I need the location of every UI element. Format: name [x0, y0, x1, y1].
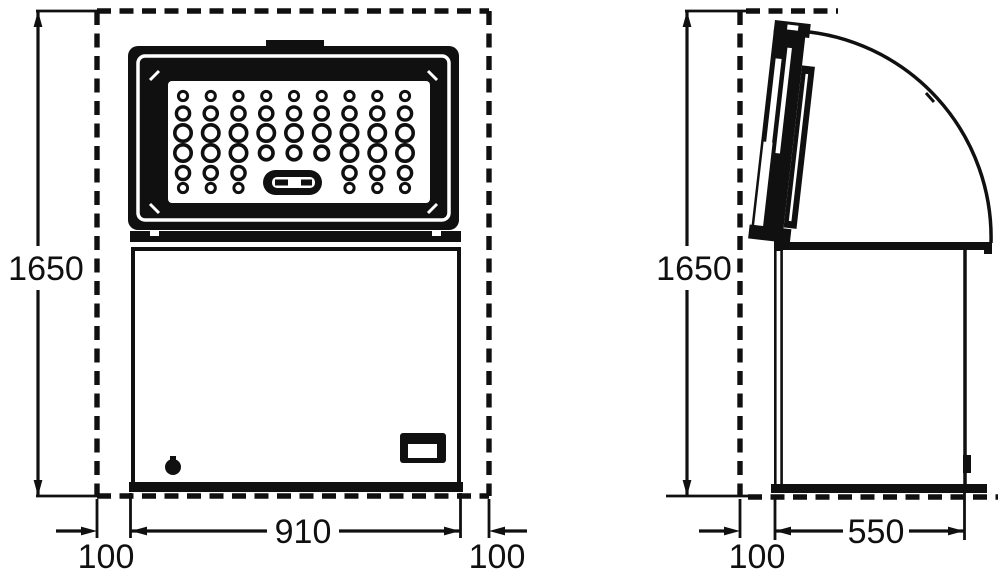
side-dim-height: 1650	[656, 11, 748, 496]
front-height-label: 1650	[8, 250, 84, 288]
lid-hole	[371, 166, 384, 179]
arrowhead-right	[948, 527, 964, 536]
arrowhead-left	[131, 527, 147, 536]
front-dim-clearance-left: 100	[56, 499, 134, 576]
lid-hole	[176, 166, 189, 179]
lid-hole	[203, 145, 219, 161]
lid-hole	[230, 125, 246, 141]
rating-plate-inner	[408, 444, 437, 458]
side-freezer	[748, 20, 992, 493]
lid-hole	[341, 125, 357, 141]
lid-hole	[315, 146, 329, 160]
lid-hole	[175, 145, 191, 161]
cabinet-base-front	[129, 482, 463, 492]
front-open-lid	[128, 40, 459, 230]
lid-hole	[314, 125, 330, 141]
lid-hole	[400, 91, 409, 100]
front-clearance-left-label: 100	[78, 538, 135, 576]
side-dim-depth: 550	[775, 493, 965, 551]
lid-hole	[398, 166, 411, 179]
arrowhead-down	[34, 480, 43, 496]
lid-hole	[369, 145, 385, 161]
arrowhead-left	[775, 527, 791, 536]
cabinet-rim-front	[130, 231, 461, 242]
lid-hole	[203, 125, 219, 141]
lid-hole	[206, 91, 215, 100]
front-dim-clearance-right: 100	[469, 499, 527, 576]
arrowhead-right	[444, 527, 460, 536]
arrowhead-up	[683, 11, 692, 27]
lid-hole	[260, 107, 273, 120]
side-dim-clearance-rear: 100	[699, 499, 785, 576]
front-dim-width: 910	[131, 493, 461, 551]
lid-hole	[343, 107, 356, 120]
lid-hole	[369, 125, 385, 141]
lid-hole	[204, 107, 217, 120]
freezer-clearance-diagram: 1650 910 100 100	[0, 0, 1000, 577]
lid-hole	[341, 145, 357, 161]
front-clearance-right-label: 100	[469, 538, 526, 576]
lid-hole	[232, 166, 245, 179]
lid-hole	[345, 183, 354, 192]
lid-hole	[397, 125, 413, 141]
side-depth-label: 550	[848, 513, 905, 551]
lid-hole	[373, 183, 382, 192]
rim-notch-left	[150, 231, 159, 236]
lid-hole	[178, 183, 187, 192]
lid-hole	[289, 91, 298, 100]
lid-hole	[234, 183, 243, 192]
lid-hole	[232, 107, 245, 120]
lid-hole	[345, 91, 354, 100]
lid-hole	[206, 183, 215, 192]
side-view: 1650 100 550	[656, 11, 998, 576]
lid-hole	[317, 91, 326, 100]
arrowhead-right	[81, 527, 97, 536]
lid-hole	[373, 91, 382, 100]
lid-hole	[371, 107, 384, 120]
arrowhead-left	[489, 527, 505, 536]
side-clearance-label: 100	[729, 538, 786, 576]
lid-hole	[398, 107, 411, 120]
lid-hole	[315, 107, 328, 120]
lid-handle	[263, 170, 322, 195]
diagram-canvas: 1650 910 100 100	[0, 0, 1000, 577]
arrowhead-right	[724, 527, 740, 536]
cabinet-hinge-nub	[963, 455, 971, 473]
lid-hole	[259, 146, 273, 160]
cabinet-base-side	[771, 484, 987, 493]
drain-plug	[165, 459, 181, 475]
lid-hole	[287, 107, 300, 120]
lid-hole	[175, 125, 191, 141]
lid-hole	[397, 145, 413, 161]
arrowhead-down	[683, 480, 692, 496]
rating-plate	[400, 433, 446, 463]
arrowhead-up	[34, 11, 43, 27]
lid-hole	[178, 91, 187, 100]
cabinet-rim-end-hook	[984, 242, 992, 254]
lid-hole	[258, 125, 274, 141]
front-view: 1650 910 100 100	[8, 11, 527, 576]
lid-hole	[230, 145, 246, 161]
lid-hole	[287, 146, 301, 160]
front-width-label: 910	[275, 513, 332, 551]
lid-hole	[286, 125, 302, 141]
cabinet-rim-side	[776, 242, 991, 250]
lid-hole	[204, 166, 217, 179]
lid-handle-tab-left	[275, 180, 288, 186]
lid-hole	[262, 91, 271, 100]
rim-notch-right	[432, 231, 441, 236]
lid-swing-arc	[799, 31, 991, 243]
lid-hole	[234, 91, 243, 100]
lid-hole	[343, 166, 356, 179]
lid-hole	[176, 107, 189, 120]
front-freezer	[128, 40, 463, 492]
side-height-label: 1650	[656, 250, 732, 288]
lid-hole	[400, 183, 409, 192]
lid-handle-tab-right	[301, 180, 312, 186]
side-open-lid	[748, 20, 820, 244]
front-dim-height: 1650	[8, 11, 99, 496]
